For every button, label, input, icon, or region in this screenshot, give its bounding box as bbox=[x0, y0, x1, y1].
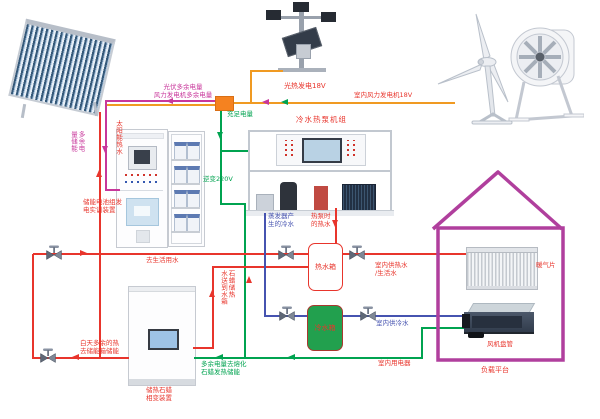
gate-valve-icon bbox=[277, 244, 295, 262]
indicator-lights bbox=[347, 140, 349, 156]
turbine-blade bbox=[476, 14, 490, 60]
label-paraffin-device: 储热石蜡 相变装置 bbox=[146, 387, 172, 402]
cabinet-base bbox=[129, 379, 195, 385]
label-line: 去储能箱储能 bbox=[80, 348, 119, 356]
label-radiator: 暖气片 bbox=[536, 262, 556, 270]
wind-turbine-and-fan-image bbox=[424, 4, 584, 128]
wire-solar-gen-stub bbox=[250, 70, 283, 72]
label-line: 电实训装置 bbox=[83, 207, 122, 215]
pipe-solar-hot-drop bbox=[99, 112, 101, 358]
heat-pump-bench-image bbox=[246, 126, 394, 216]
lamp-icon bbox=[321, 12, 336, 22]
tracker-box bbox=[296, 44, 311, 59]
label-heatpump-hot: 热泵时 的热水 bbox=[311, 213, 331, 228]
cabinet-top bbox=[129, 287, 195, 292]
label-fan-coil: 风机盘管 bbox=[487, 341, 513, 349]
label-inverter: 逆变220V bbox=[203, 176, 233, 184]
gate-valve-icon bbox=[45, 244, 63, 262]
label-to-domestic-water: 去生活用水 bbox=[146, 257, 179, 265]
flow-arrow-down-icon bbox=[217, 132, 223, 139]
label-line: 风力发电机多余电量 bbox=[147, 92, 219, 100]
label-line: 水送到水箱 bbox=[219, 270, 227, 316]
label-solar-hot-water: 太阳能热水 bbox=[114, 120, 122, 166]
gate-valve-icon bbox=[278, 305, 296, 323]
label-load-platform: 负载平台 bbox=[481, 366, 509, 374]
heat-exchanger bbox=[314, 186, 328, 210]
flow-arrow-down-icon bbox=[102, 146, 108, 153]
indicator-lights bbox=[125, 174, 159, 176]
shelf bbox=[171, 183, 200, 185]
label-paraffin-send-to-tank: 石蜡储热 水送到水箱 bbox=[219, 270, 234, 316]
label-battery-device: 储能电池组发 电实训装置 bbox=[83, 199, 122, 214]
diagram-canvas: 热水箱 冷水箱 光伏多余电量 风力发电机多余电量 充足电量 多余电 量储能 逆变… bbox=[0, 0, 600, 419]
gate-valve-icon bbox=[348, 244, 366, 262]
lamp-icon bbox=[293, 2, 309, 12]
cabinet-divider bbox=[120, 190, 163, 191]
flow-arrow-up-icon bbox=[96, 170, 102, 177]
indicator-lights bbox=[291, 140, 293, 156]
shelf bbox=[171, 159, 200, 161]
indicator-lights bbox=[125, 181, 159, 183]
wire-sufficient-drop bbox=[220, 109, 222, 205]
bench-rail bbox=[248, 130, 392, 132]
gate-valve-icon bbox=[359, 305, 377, 323]
flow-arrow-left-icon bbox=[288, 354, 295, 360]
fan-coil-front bbox=[472, 316, 522, 328]
flow-arrow-left-icon bbox=[262, 99, 269, 105]
display-screen bbox=[134, 150, 150, 164]
cabinet-panel bbox=[126, 198, 159, 226]
pipe-paraffin-out bbox=[193, 347, 214, 349]
fan-coil-motor bbox=[462, 314, 470, 328]
pipe-evaporator-drop bbox=[264, 213, 266, 317]
wire-to-heatpump bbox=[221, 150, 248, 152]
hot-water-tank-label: 热水箱 bbox=[315, 262, 336, 272]
fan-coil-pump bbox=[468, 332, 484, 338]
label-line: 量储能 bbox=[69, 131, 77, 159]
label-line: /生活水 bbox=[375, 270, 408, 278]
pipe-paraffin-riser bbox=[212, 266, 214, 349]
solar-tracker-generator-image bbox=[266, 2, 338, 86]
bench-screen bbox=[302, 138, 342, 163]
label-indoor-cold-supply: 室内供冷水 bbox=[376, 320, 409, 328]
collector-leg bbox=[21, 104, 26, 118]
flow-arrow-up-icon bbox=[209, 290, 215, 297]
flow-arrow-right-icon bbox=[80, 250, 87, 256]
radiator-image bbox=[466, 247, 538, 290]
house-roof bbox=[433, 172, 562, 229]
label-evaporator-cold: 蒸发器产 生的冷水 bbox=[268, 213, 294, 228]
compressor bbox=[280, 182, 297, 210]
label-sufficient-power: 充足电量 bbox=[227, 111, 253, 119]
cabinet-display bbox=[128, 146, 157, 170]
paraffin-screen bbox=[148, 329, 179, 350]
label-daytime-excess-heat: 白天多余的热 去储能箱储能 bbox=[80, 340, 119, 355]
indicator-lights bbox=[353, 140, 355, 156]
label-pv-wind-excess: 光伏多余电量 风力发电机多余电量 bbox=[147, 84, 219, 99]
cabinet-vent bbox=[136, 230, 150, 243]
label-indoor-hot-supply: 室内供热水 /生活水 bbox=[375, 262, 408, 277]
gate-valve-icon bbox=[39, 347, 57, 365]
bench-control-panel bbox=[276, 134, 366, 166]
label-line: 石蜡发热储能 bbox=[201, 369, 247, 377]
wire-storage-into-cabinet bbox=[105, 189, 120, 191]
label-heatpump-title: 冷水热泵机组 bbox=[296, 116, 347, 124]
solar-collector-image bbox=[6, 20, 110, 120]
flow-arrow-down-icon bbox=[332, 220, 338, 227]
battery-cabinet-image bbox=[168, 131, 205, 247]
label-excess-melt-paraffin: 多余电量去熔化 石蜡发热储能 bbox=[201, 361, 247, 376]
wire-bus-orange-left bbox=[106, 104, 215, 106]
fan-coil-image bbox=[462, 300, 538, 340]
flow-arrow-left-icon bbox=[281, 99, 288, 105]
label-line: 相变装置 bbox=[146, 395, 172, 403]
pipe-bypass-riser bbox=[32, 254, 34, 359]
pipe-domestic-hot bbox=[33, 253, 309, 255]
shelf bbox=[171, 207, 200, 209]
flow-arrow-left-icon bbox=[72, 354, 79, 360]
cabinet-vent bbox=[120, 133, 164, 139]
cold-water-tank-label: 冷水箱 bbox=[315, 323, 336, 333]
label-line: 生的冷水 bbox=[268, 221, 294, 229]
label-indoor-wind-generator: 室内风力发电机18V bbox=[354, 92, 412, 100]
label-excess-storage: 多余电 量储能 bbox=[69, 131, 84, 159]
label-solar-generator: 光热发电18V bbox=[284, 82, 326, 90]
indicator-lights bbox=[285, 140, 287, 156]
flow-arrow-up-icon bbox=[246, 276, 252, 283]
wire-house-riser bbox=[421, 327, 423, 359]
wire-excess-bus-magenta bbox=[106, 100, 215, 102]
condenser-coil bbox=[342, 184, 376, 212]
collector-tube-panel bbox=[8, 19, 115, 117]
shelf bbox=[171, 231, 200, 233]
lamp-icon bbox=[266, 10, 281, 20]
panel-window bbox=[134, 206, 150, 216]
label-line: 的热水 bbox=[311, 221, 331, 229]
bench-rail bbox=[248, 170, 392, 172]
wire-jog bbox=[221, 203, 246, 205]
label-indoor-appliances: 室内用电器 bbox=[378, 360, 411, 368]
tracker-base bbox=[278, 68, 326, 72]
pipe-paraffin-to-tank bbox=[213, 266, 309, 268]
cold-water-tank: 冷水箱 bbox=[307, 305, 343, 351]
wire-solar-gen-drop bbox=[250, 70, 252, 104]
hot-water-tank: 热水箱 bbox=[308, 243, 343, 291]
paraffin-storage-cabinet-image bbox=[128, 286, 196, 386]
control-cabinet-image bbox=[116, 129, 168, 248]
